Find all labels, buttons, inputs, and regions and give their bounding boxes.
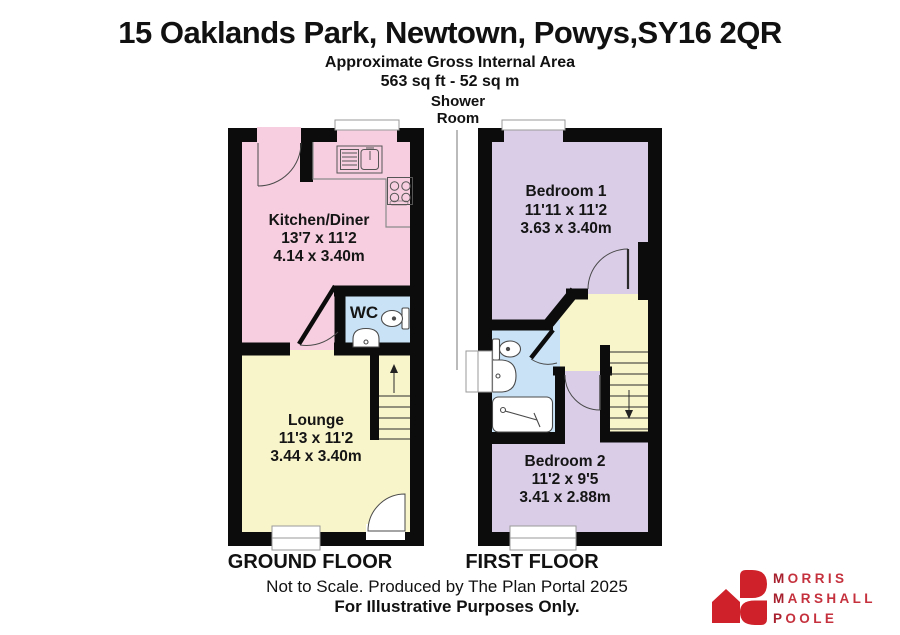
bedroom1-window xyxy=(502,120,565,130)
logo-petal-top-shape xyxy=(740,570,767,598)
shower-window xyxy=(466,351,492,392)
basin-icon xyxy=(493,360,517,392)
bedroom2-dims-metric: 3.41 x 2.88m xyxy=(519,489,610,506)
footer-note: Not to Scale. Produced by The Plan Porta… xyxy=(266,577,628,597)
wc-basin-icon xyxy=(353,329,379,348)
logo-petal-bottom-shape xyxy=(740,601,767,626)
bedroom1-dims-metric: 3.63 x 3.40m xyxy=(520,220,611,237)
kitchen-dims-imperial: 13'7 x 11'2 xyxy=(281,230,356,247)
bedroom1-window-gap xyxy=(504,129,563,142)
logo-house-shape xyxy=(712,589,740,623)
footer-disclaimer: For Illustrative Purposes Only. xyxy=(334,597,579,617)
logo-word-poole: POOLE xyxy=(773,609,876,629)
wc-room-label: WC xyxy=(350,303,378,322)
floorplan-page: 15 Oaklands Park, Newtown, Powys,SY16 2Q… xyxy=(0,0,900,635)
lounge-dims-imperial: 11'3 x 11'2 xyxy=(279,430,354,447)
bedroom1-room-label: Bedroom 1 xyxy=(526,183,607,200)
agency-logo-text: MORRIS MARSHALL POOLE xyxy=(773,569,876,629)
logo-word-morris: MORRIS xyxy=(773,569,876,589)
shower-tray-icon xyxy=(493,397,553,432)
entry-door-opening xyxy=(257,127,301,143)
bedroom2-dims-imperial: 11'2 x 9'5 xyxy=(532,471,599,488)
kitchen-dims-metric: 4.14 x 3.40m xyxy=(273,248,364,265)
kitchen-window-gap xyxy=(337,129,397,142)
lounge-window xyxy=(272,526,320,550)
bedroom1-dims-imperial: 11'11 x 11'2 xyxy=(525,202,607,219)
kitchen-window xyxy=(335,120,399,130)
first-floor-plan: Bedroom 1 11'11 x 11'2 3.63 x 3.40m Bedr… xyxy=(466,120,655,550)
lounge-dims-metric: 3.44 x 3.40m xyxy=(270,448,361,465)
ground-floor-caption: GROUND FLOOR xyxy=(228,551,392,574)
kitchen-room-label: Kitchen/Diner xyxy=(269,212,370,229)
first-floor-caption: FIRST FLOOR xyxy=(465,551,598,574)
floorplan-canvas: Kitchen/Diner 13'7 x 11'2 4.14 x 3.40m W… xyxy=(0,0,900,635)
lounge-room-label: Lounge xyxy=(288,412,344,429)
bedroom2-room-label: Bedroom 2 xyxy=(525,453,606,470)
ground-floor-plan: Kitchen/Diner 13'7 x 11'2 4.14 x 3.40m W… xyxy=(228,120,424,550)
bedroom2-window xyxy=(510,526,576,550)
logo-word-marshall: MARSHALL xyxy=(773,589,876,609)
agency-logo-icon xyxy=(712,570,767,625)
